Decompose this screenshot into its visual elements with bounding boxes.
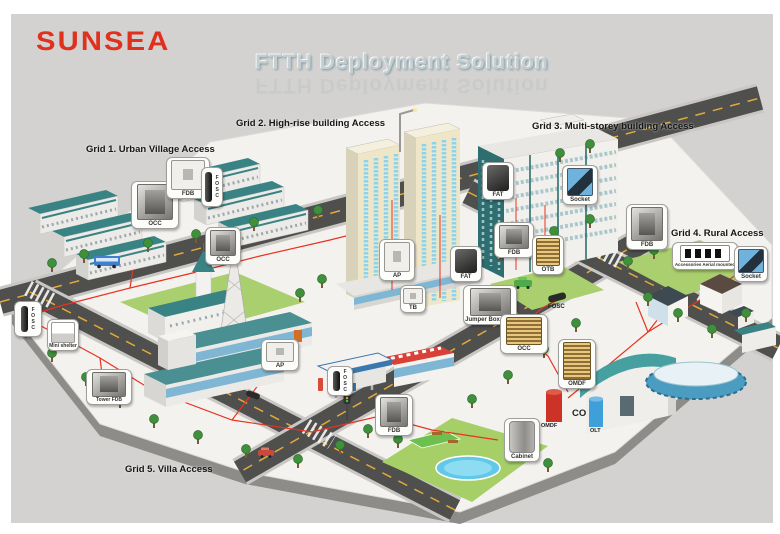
callout-label: AP: [276, 363, 284, 369]
stadium: [646, 362, 746, 399]
co-label: CO: [572, 408, 586, 419]
callout-label: FDB: [641, 242, 653, 248]
splice-closure-icon: [21, 306, 28, 332]
callout-accessories-aerial: Accessories Aerial mounted: [672, 242, 738, 270]
callout-label: Tower FDB: [96, 398, 122, 403]
bench: [432, 432, 442, 435]
callout-label: OTB: [542, 267, 555, 273]
access-point-box-icon: [266, 342, 295, 362]
cabinet-icon: [631, 207, 663, 241]
callout-fat-multistorey: FAT: [482, 162, 514, 200]
shelter-icon: [51, 322, 75, 343]
callout-fosc-urban: FOSC: [201, 167, 223, 207]
splice-closure-icon: [333, 371, 340, 392]
pool-water: [444, 460, 492, 476]
callout-ap-highrise: AP: [379, 239, 415, 281]
fiber-access-terminal-icon: [487, 165, 509, 191]
olt-cylinder: [589, 399, 603, 427]
omdf-cylinder: [546, 392, 562, 422]
callout-fosc-left: FOSC: [14, 301, 42, 337]
cabinet-icon: [210, 230, 237, 256]
fiber-access-terminal-icon: [455, 249, 477, 273]
callout-label: Socket: [570, 197, 590, 203]
callout-label: OCC: [517, 346, 530, 352]
callout-cabinet: Cabinet: [504, 418, 540, 462]
bench: [448, 440, 458, 443]
grid4-label: Grid 4. Rural Access: [671, 228, 764, 239]
callout-fdb-rural: FDB: [626, 204, 668, 250]
callout-label: Accessories Aerial mounted: [675, 263, 735, 268]
callout-socket-rural: Socket: [734, 246, 768, 282]
callout-label: AP: [393, 273, 401, 279]
callout-fdb-villa: FDB: [375, 394, 413, 436]
cabinet-icon: [380, 397, 409, 427]
callout-label: TB: [409, 305, 417, 311]
cabinet-icon: [499, 225, 529, 249]
cabinet-icon: [92, 372, 127, 397]
sunsea-logo: SUNSEA: [36, 26, 170, 57]
accessories-icon: [680, 245, 730, 262]
splice-closure-icon: [205, 172, 212, 201]
callout-label: FDB: [508, 250, 520, 256]
callout-omdf: OMDF: [558, 339, 596, 389]
socket-icon: [738, 249, 763, 273]
omdf-cylinder-label: OMDF: [541, 423, 557, 429]
ftth-deployment-diagram: SUNSEA FTTH Deployment Solution FTTH Dep…: [0, 0, 780, 534]
rack-icon: [506, 317, 542, 345]
callout-label: Mini shelter: [49, 344, 77, 349]
grid5-label: Grid 5. Villa Access: [125, 464, 213, 475]
cabinet-icon: [509, 421, 536, 453]
callout-label: Cabinet: [511, 454, 533, 460]
grid2-label: Grid 2. High-rise building Access: [236, 118, 385, 129]
callout-label: Socket: [741, 274, 761, 280]
callout-occ-2: OCC: [205, 227, 241, 265]
callout-label: FDB: [182, 191, 194, 197]
callout-ap-villa: AP: [261, 339, 299, 371]
diagram-title: FTTH Deployment Solution: [230, 51, 574, 75]
rack-icon: [563, 342, 592, 380]
callout-label: OCC: [216, 257, 229, 263]
callout-fosc-villa: FOSC: [327, 366, 353, 396]
callout-label: OCC: [148, 221, 161, 227]
callout-label: FAT: [493, 192, 504, 198]
access-point-box-icon: [384, 242, 411, 272]
terminal-box-icon: [536, 238, 560, 266]
mini-shelter-structure: [158, 330, 196, 370]
fosc-road-label: FOSC: [548, 304, 565, 310]
callout-tb: TB: [400, 285, 426, 313]
cabinet-icon: [470, 288, 511, 316]
callout-label: FDB: [388, 428, 400, 434]
callout-label: FOSC: [214, 175, 219, 199]
callout-mini-shelter: Mini shelter: [47, 319, 79, 351]
callout-fdb-multistorey: FDB: [494, 222, 534, 258]
callout-label: FOSC: [30, 307, 35, 331]
callout-label: FAT: [461, 274, 472, 280]
callout-label: FOSC: [342, 369, 347, 393]
callout-tower-fdb: Tower FDB: [86, 369, 132, 405]
grid3-label: Grid 3. Multi-storey building Access: [532, 121, 694, 132]
callout-otb: OTB: [532, 235, 564, 275]
callout-fat-highrise: FAT: [450, 246, 482, 282]
terminal-box-icon: [171, 160, 204, 190]
callout-label: OMDF: [568, 381, 586, 387]
socket-icon: [567, 168, 594, 196]
callout-socket-multistorey: Socket: [562, 165, 598, 205]
callout-occ-center: OCC: [500, 314, 548, 354]
terminal-box-icon: [403, 288, 422, 304]
grid1-label: Grid 1. Urban Village Access: [86, 144, 215, 155]
diagram-title-reflection: FTTH Deployment Solution: [230, 73, 574, 97]
olt-cylinder-label: OLT: [590, 428, 601, 434]
